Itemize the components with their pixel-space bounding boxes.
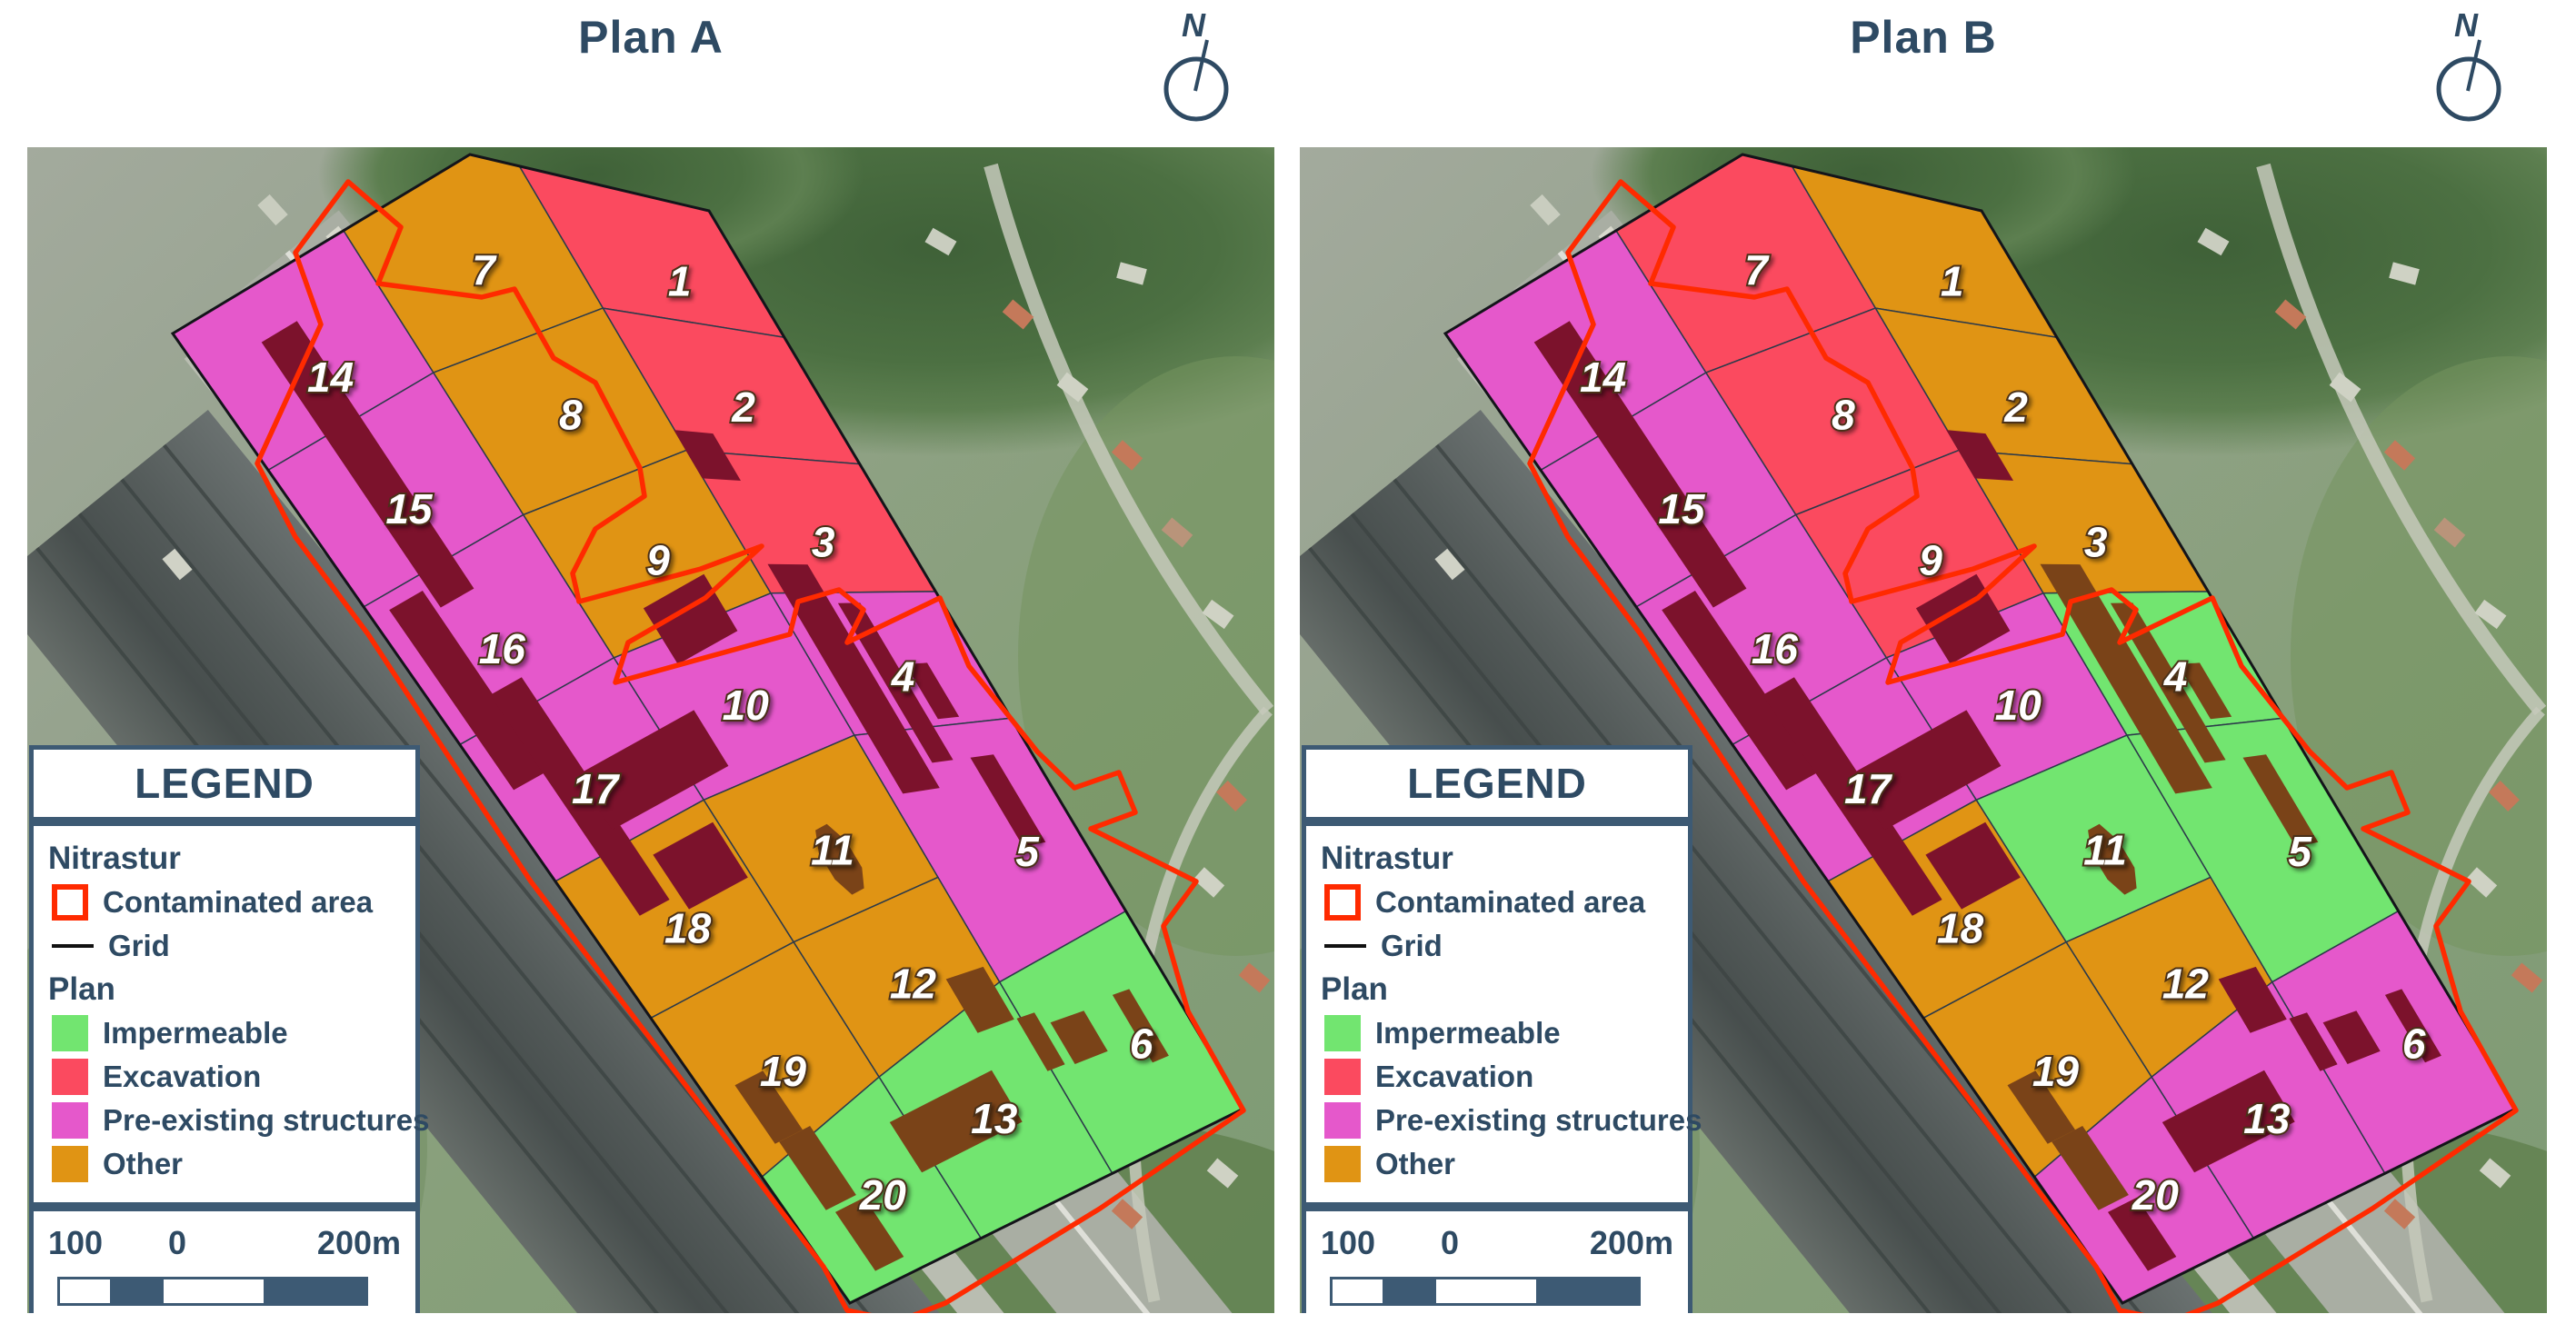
panel-plan-b: Plan B N 1234567891011121314151617181920… bbox=[1300, 0, 2547, 1324]
zone-13-label: 13 bbox=[971, 1095, 1018, 1142]
zone-19-label: 19 bbox=[760, 1048, 807, 1095]
zone-18-label: 18 bbox=[1937, 904, 1984, 951]
scale-label-0: 0 bbox=[150, 1224, 205, 1262]
scale-segment bbox=[264, 1279, 365, 1303]
scale-label-100: 100 bbox=[1321, 1224, 1375, 1262]
zone-4-label: 4 bbox=[891, 653, 915, 701]
zone-6-label: 6 bbox=[1130, 1020, 1153, 1068]
preexisting-structures-swatch-icon bbox=[1324, 1102, 1361, 1139]
impermeable-swatch-icon bbox=[52, 1015, 88, 1051]
legend-item-contaminated-area: Contaminated area bbox=[1324, 884, 1673, 921]
map-plan-a: 1234567891011121314151617181920 LEGEND N… bbox=[27, 147, 1274, 1313]
zone-14-label: 14 bbox=[1580, 353, 1626, 401]
zone-16-label: 16 bbox=[1752, 625, 1799, 672]
scale-bar: 100 0 200m bbox=[1302, 1207, 1692, 1313]
zone-6-label: 6 bbox=[2402, 1020, 2426, 1068]
other-swatch-icon bbox=[1324, 1146, 1361, 1182]
zone-12-label: 12 bbox=[2162, 960, 2210, 1007]
zone-8-label: 8 bbox=[1832, 392, 1855, 439]
zone-16-label: 16 bbox=[479, 625, 526, 672]
zone-15-label: 15 bbox=[1658, 485, 1706, 533]
zone-8-label: 8 bbox=[559, 392, 583, 439]
legend-item-impermeable: Impermeable bbox=[1324, 1015, 1673, 1051]
zone-17-label: 17 bbox=[1844, 765, 1893, 812]
zone-20-label: 20 bbox=[2132, 1171, 2180, 1219]
zone-7-label: 7 bbox=[1744, 246, 1770, 294]
other-swatch-icon bbox=[52, 1146, 88, 1182]
scale-segment bbox=[110, 1279, 162, 1303]
legend-item-contaminated-area: Contaminated area bbox=[52, 884, 401, 921]
grid-line-swatch-icon bbox=[52, 928, 94, 964]
plan-b-title: Plan B bbox=[1300, 11, 2547, 64]
legend-item-grid: Grid bbox=[1324, 928, 1673, 964]
zone-11-label: 11 bbox=[2083, 827, 2127, 874]
legend-section-nitrastur: Nitrastur bbox=[48, 841, 401, 877]
north-arrow-icon: N bbox=[2427, 9, 2511, 131]
legend-title: LEGEND bbox=[29, 745, 420, 821]
zone-1-label: 1 bbox=[668, 257, 692, 304]
zone-7-label: 7 bbox=[472, 246, 497, 294]
legend-item-preexisting-structures: Pre-existing structures bbox=[52, 1102, 401, 1139]
legend-items: Nitrastur Contaminated area Grid Plan Im… bbox=[1302, 821, 1692, 1207]
panel-plan-a: Plan A N 1234567891011121314151617181920… bbox=[27, 0, 1274, 1324]
north-label: N bbox=[1182, 9, 1206, 44]
zone-19-label: 19 bbox=[2032, 1048, 2080, 1095]
zone-20-label: 20 bbox=[859, 1171, 907, 1219]
legend-item-impermeable: Impermeable bbox=[52, 1015, 401, 1051]
scale-segment bbox=[60, 1279, 110, 1303]
legend-items: Nitrastur Contaminated area Grid Plan Im… bbox=[29, 821, 420, 1207]
zone-4-label: 4 bbox=[2163, 653, 2188, 701]
excavation-swatch-icon bbox=[52, 1059, 88, 1095]
legend-item-preexisting-structures: Pre-existing structures bbox=[1324, 1102, 1673, 1139]
scale-segment bbox=[1383, 1279, 1434, 1303]
zone-3-label: 3 bbox=[812, 518, 835, 565]
grid-line-swatch-icon bbox=[1324, 928, 1366, 964]
zone-11-label: 11 bbox=[811, 827, 854, 874]
legend-section-nitrastur: Nitrastur bbox=[1321, 841, 1673, 877]
legend: LEGEND Nitrastur Contaminated area Grid … bbox=[29, 745, 420, 1313]
legend-item-excavation: Excavation bbox=[1324, 1059, 1673, 1095]
contaminated-area-swatch-icon bbox=[52, 884, 88, 921]
legend: LEGEND Nitrastur Contaminated area Grid … bbox=[1302, 745, 1692, 1313]
legend-item-excavation: Excavation bbox=[52, 1059, 401, 1095]
plan-a-title: Plan A bbox=[27, 11, 1274, 64]
scale-label-200m: 200m bbox=[1590, 1224, 1673, 1262]
excavation-swatch-icon bbox=[1324, 1059, 1361, 1095]
scale-segment bbox=[1333, 1279, 1383, 1303]
preexisting-structures-swatch-icon bbox=[52, 1102, 88, 1139]
zone-5-label: 5 bbox=[2288, 828, 2312, 875]
zone-5-label: 5 bbox=[1015, 828, 1040, 875]
zone-1-label: 1 bbox=[1941, 257, 1964, 304]
legend-section-plan: Plan bbox=[48, 971, 401, 1008]
scale-segment bbox=[1536, 1279, 1638, 1303]
figure-two-plan-maps: Plan A N 1234567891011121314151617181920… bbox=[0, 0, 2576, 1324]
zone-2-label: 2 bbox=[731, 383, 755, 431]
legend-item-other: Other bbox=[1324, 1146, 1673, 1182]
scale-track bbox=[57, 1277, 368, 1306]
scale-label-0: 0 bbox=[1423, 1224, 1477, 1262]
scale-label-200m: 200m bbox=[317, 1224, 401, 1262]
legend-title: LEGEND bbox=[1302, 745, 1692, 821]
north-arrow-icon: N bbox=[1154, 9, 1238, 131]
scale-segment bbox=[1434, 1279, 1536, 1303]
scale-bar: 100 0 200m bbox=[29, 1207, 420, 1313]
scale-track bbox=[1330, 1277, 1641, 1306]
north-label: N bbox=[2454, 9, 2479, 44]
zone-9-label: 9 bbox=[646, 536, 670, 583]
zone-2-label: 2 bbox=[2003, 383, 2028, 431]
scale-segment bbox=[162, 1279, 264, 1303]
zone-15-label: 15 bbox=[385, 485, 434, 533]
zone-13-label: 13 bbox=[2243, 1095, 2291, 1142]
legend-item-other: Other bbox=[52, 1146, 401, 1182]
contaminated-area-swatch-icon bbox=[1324, 884, 1361, 921]
legend-item-grid: Grid bbox=[52, 928, 401, 964]
zone-14-label: 14 bbox=[307, 353, 354, 401]
zone-9-label: 9 bbox=[1919, 536, 1942, 583]
zone-10-label: 10 bbox=[723, 682, 770, 729]
map-plan-b: 1234567891011121314151617181920 LEGEND N… bbox=[1300, 147, 2547, 1313]
zone-10-label: 10 bbox=[1995, 682, 2042, 729]
zone-18-label: 18 bbox=[664, 904, 712, 951]
zone-3-label: 3 bbox=[2084, 518, 2108, 565]
scale-label-100: 100 bbox=[48, 1224, 103, 1262]
zone-12-label: 12 bbox=[890, 960, 937, 1007]
impermeable-swatch-icon bbox=[1324, 1015, 1361, 1051]
zone-17-label: 17 bbox=[572, 765, 621, 812]
legend-section-plan: Plan bbox=[1321, 971, 1673, 1008]
